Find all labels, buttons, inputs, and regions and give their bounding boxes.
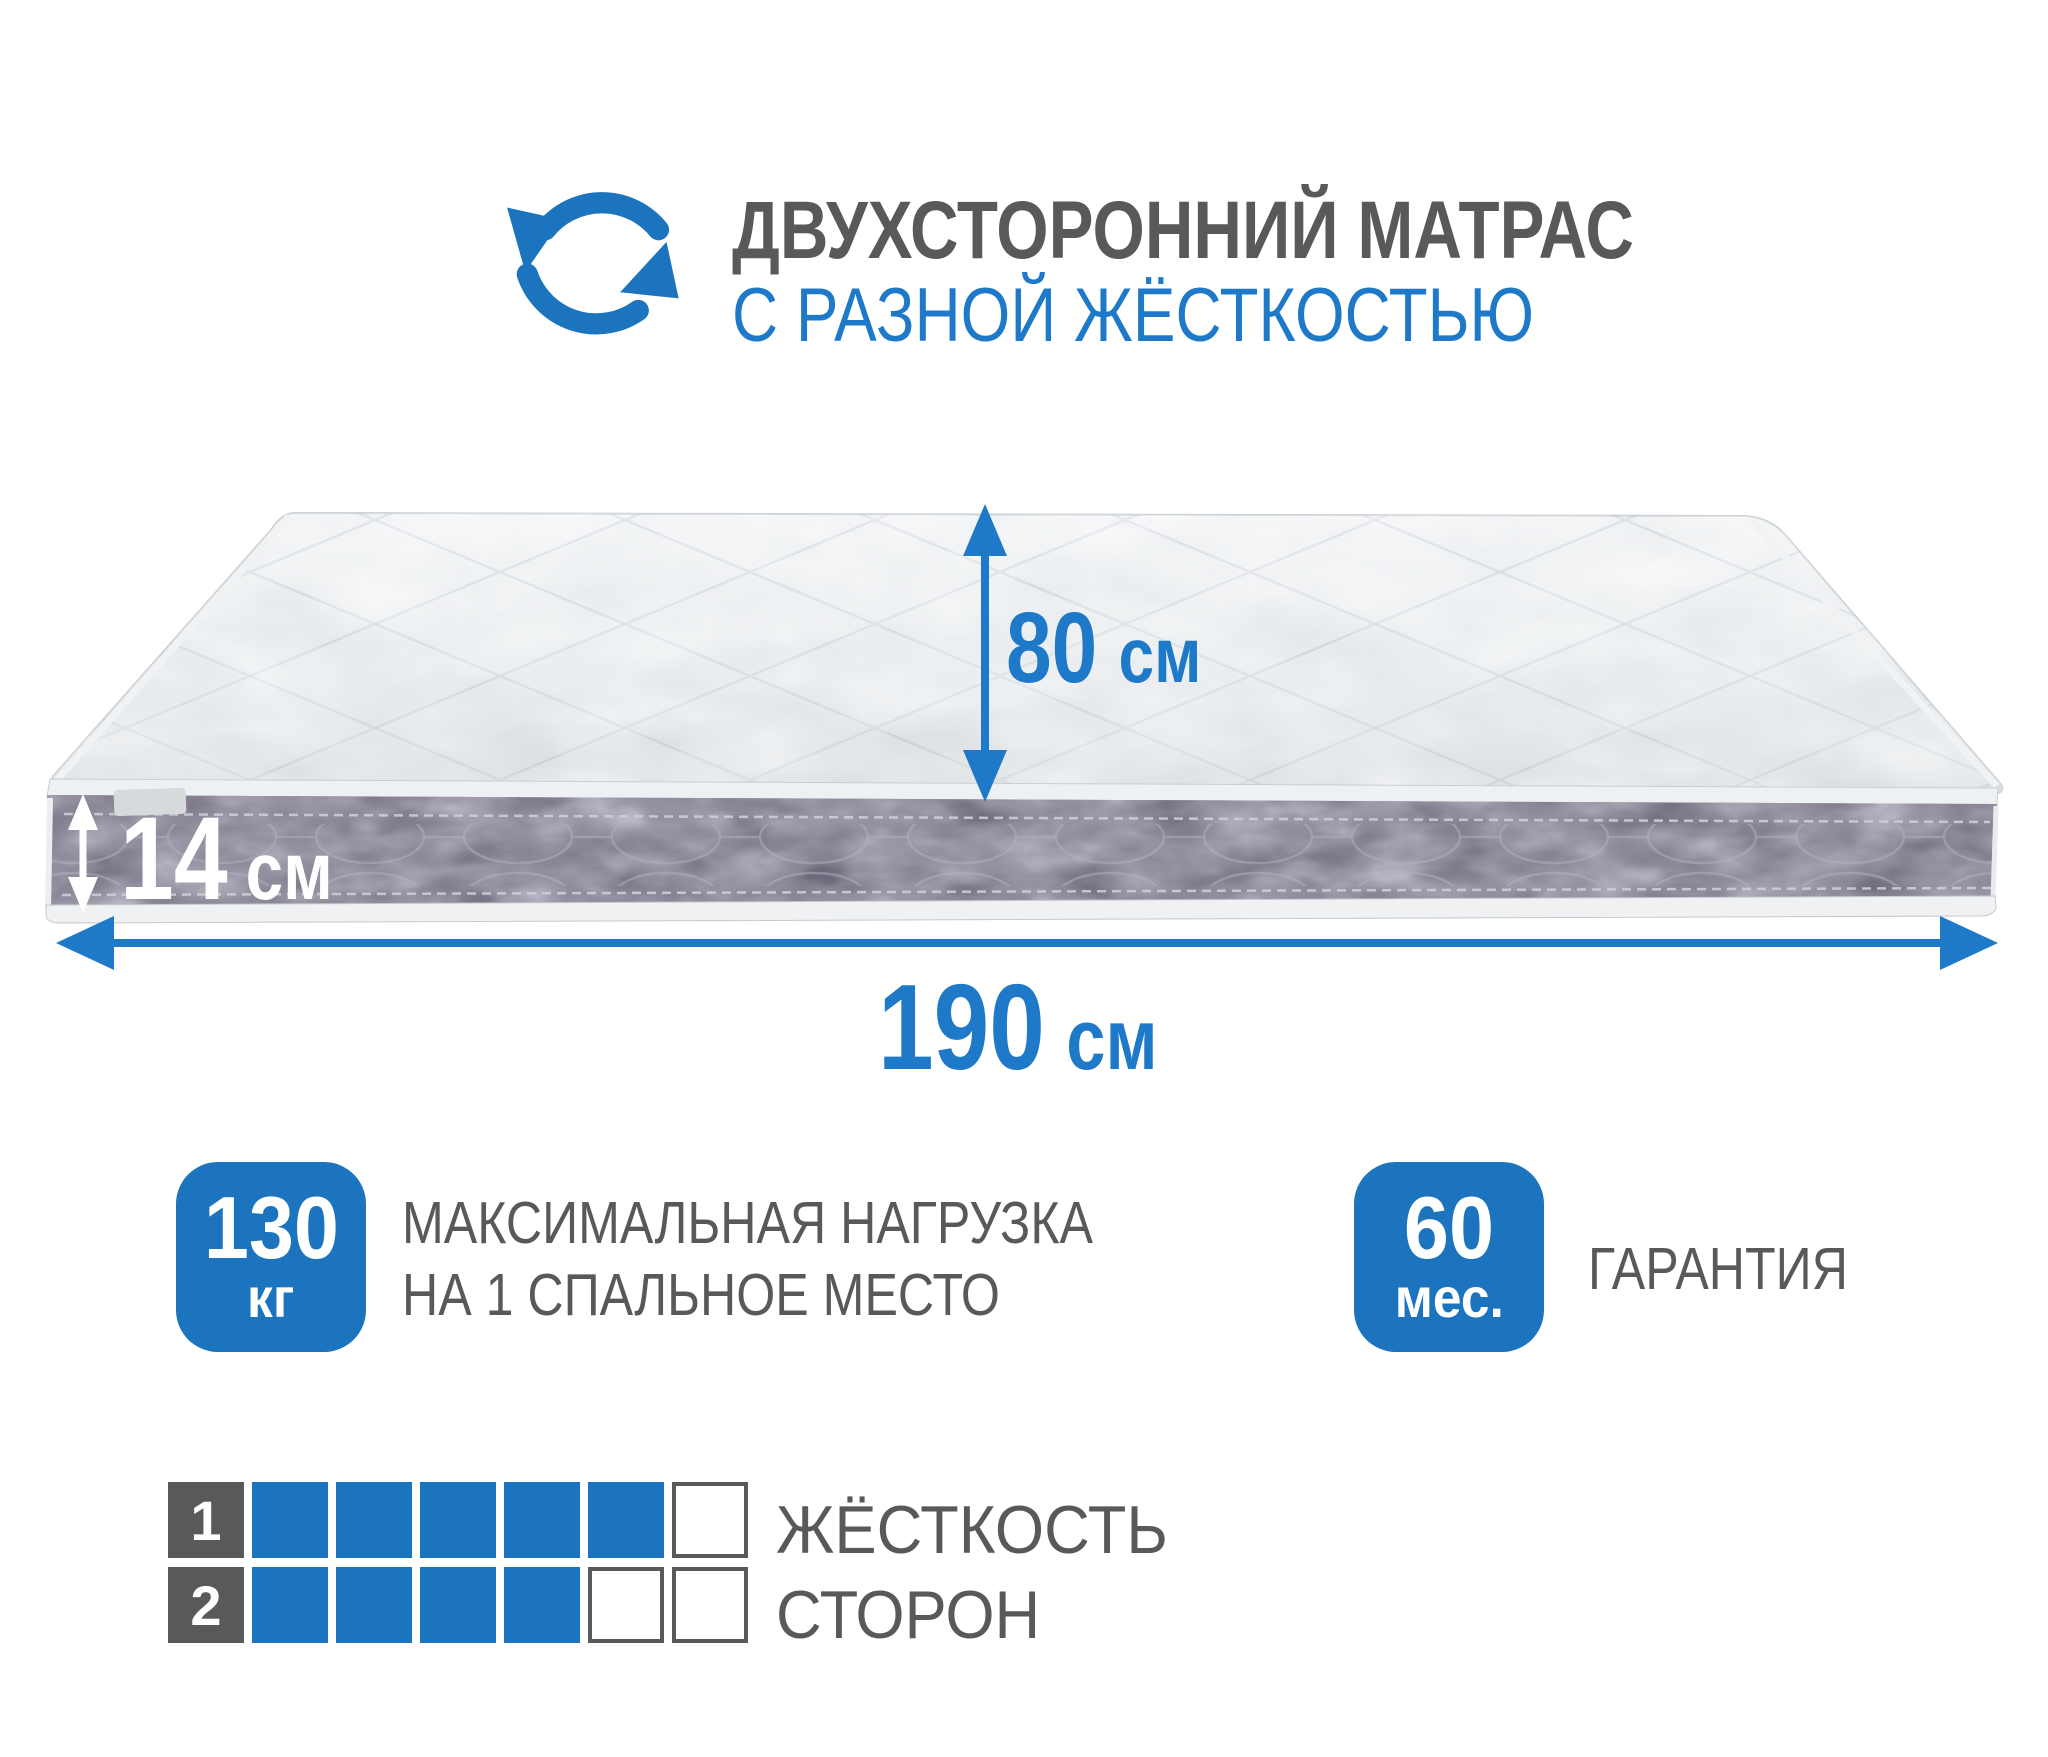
hardness-cell-filled xyxy=(252,1567,328,1643)
hardness-cell-filled xyxy=(504,1567,580,1643)
hardness-cell-filled xyxy=(336,1567,412,1643)
hardness-cell-filled xyxy=(420,1567,496,1643)
hardness-cell-empty xyxy=(672,1567,748,1643)
warranty-label-line1: ГАРАНТИЯ xyxy=(1588,1234,1848,1306)
hardness-caption-line1: ЖЁСТКОСТЬ xyxy=(776,1491,1168,1569)
hardness-cell-filled xyxy=(420,1482,496,1558)
hardness-cell-filled xyxy=(588,1482,664,1558)
hardness-rows: 12 xyxy=(168,1482,748,1643)
hardness-row-label: 2 xyxy=(168,1567,244,1643)
max-load-label-line1: МАКСИМАЛЬНАЯ НАГРУЗКА xyxy=(402,1188,1093,1260)
width-unit: см xyxy=(1119,616,1202,694)
hardness-row: 2 xyxy=(168,1567,748,1643)
max-load-label: МАКСИМАЛЬНАЯ НАГРУЗКА НА 1 СПАЛЬНОЕ МЕСТ… xyxy=(402,1188,1093,1332)
warranty-label: ГАРАНТИЯ xyxy=(1588,1234,1848,1306)
max-load-value: 130 xyxy=(203,1188,338,1269)
hardness-row: 1 xyxy=(168,1482,748,1558)
width-value: 80 xyxy=(1006,598,1097,698)
hardness-cell-filled xyxy=(504,1482,580,1558)
max-load-label-line2: НА 1 СПАЛЬНОЕ МЕСТО xyxy=(402,1260,1093,1332)
hardness-cell-filled xyxy=(336,1482,412,1558)
thickness-value: 14 xyxy=(120,800,228,918)
hardness-cell-empty xyxy=(588,1567,664,1643)
length-value: 190 xyxy=(878,966,1045,1088)
thickness-unit: см xyxy=(246,831,333,913)
hardness-row-label: 1 xyxy=(168,1482,244,1558)
length-dimension-label: 190 см xyxy=(878,966,1158,1088)
mattress-infographic: ДВУХСТОРОННИЙ МАТРАС С РАЗНОЙ ЖЁСТКОСТЬЮ xyxy=(0,0,2048,1757)
max-load-unit: кг xyxy=(247,1270,294,1326)
warranty-value: 60 xyxy=(1404,1188,1494,1269)
max-load-badge: 130 кг xyxy=(176,1162,366,1352)
thickness-dimension-label: 14 см xyxy=(120,800,333,918)
length-unit: см xyxy=(1066,997,1157,1083)
hardness-cell-empty xyxy=(672,1482,748,1558)
warranty-badge: 60 мес. xyxy=(1354,1162,1544,1352)
width-dimension-label: 80 см xyxy=(1006,598,1201,698)
hardness-cell-filled xyxy=(252,1482,328,1558)
warranty-unit: мес. xyxy=(1394,1270,1503,1326)
hardness-caption-line2: СТОРОН xyxy=(776,1576,1040,1654)
